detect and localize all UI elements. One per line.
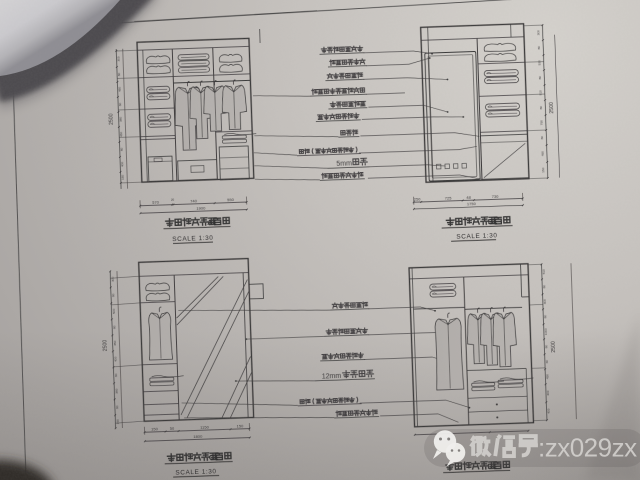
svg-text::zx029zx: :zx029zx (538, 433, 637, 463)
